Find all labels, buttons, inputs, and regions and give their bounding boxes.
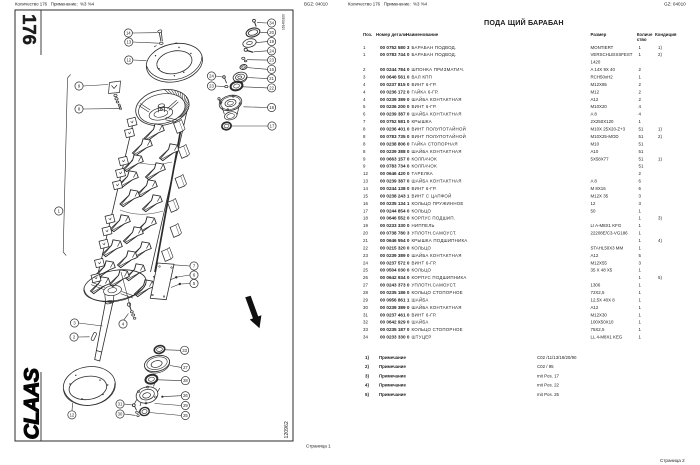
svg-text:00 0783 734 0: 00 0783 734 0 — [380, 164, 410, 169]
svg-text:КОЛПАЧОК: КОЛПАЧОК — [412, 164, 438, 169]
svg-text:00 0752 581 0: 00 0752 581 0 — [380, 119, 410, 124]
svg-text:2): 2) — [658, 134, 662, 139]
svg-text:mit Pos. 17: mit Pos. 17 — [537, 373, 560, 378]
svg-text:Наименование: Наименование — [406, 32, 439, 37]
svg-text:ВИНТ ПОЛУПОТАЙНОЙ: ВИНТ ПОЛУПОТАЙНОЙ — [412, 127, 467, 132]
svg-text:ВИНТ ПОЛУПОТАЙНОЙ: ВИНТ ПОЛУПОТАЙНОЙ — [412, 134, 467, 139]
svg-text:A10: A10 — [591, 149, 599, 154]
svg-text:ВИНТ С ЦАПФОЙ: ВИНТ С ЦАПФОЙ — [412, 193, 452, 198]
svg-text:ВИНТ 6-ГР.: ВИНТ 6-ГР. — [412, 312, 437, 317]
svg-text:БАРАБАН ПОДВОД.: БАРАБАН ПОДВОД. — [412, 45, 457, 50]
svg-text:00 0783 735 0: 00 0783 735 0 — [380, 134, 410, 139]
svg-text:18: 18 — [269, 105, 274, 110]
svg-text:00 0646 420 0: 00 0646 420 0 — [380, 171, 410, 176]
svg-text:51: 51 — [639, 141, 644, 146]
svg-text:00 0233 330 0: 00 0233 330 0 — [380, 335, 410, 340]
svg-text:ТАРЕЛКА: ТАРЕЛКА — [412, 171, 433, 176]
svg-text:26: 26 — [363, 275, 368, 280]
svg-text:НИППЕЛЬ: НИППЕЛЬ — [412, 223, 435, 228]
svg-text:2): 2) — [365, 364, 369, 369]
svg-text:33: 33 — [182, 348, 187, 353]
svg-text:ВАЛ КПП: ВАЛ КПП — [412, 75, 433, 80]
svg-text:M10X25-MOD: M10X25-MOD — [591, 134, 619, 139]
svg-text:19: 19 — [269, 39, 274, 44]
svg-text:14: 14 — [363, 186, 368, 191]
svg-text:КОРПУС ПОДШИП.: КОРПУС ПОДШИП. — [412, 216, 456, 221]
svg-text:00 0235 186 0: 00 0235 186 0 — [380, 290, 410, 295]
svg-text:17: 17 — [363, 208, 368, 213]
svg-text:GZ: 04010: GZ: 04010 — [664, 2, 686, 7]
svg-text:00 0239 388 0: 00 0239 388 0 — [380, 149, 410, 154]
svg-text:00 0239 389 0: 00 0239 389 0 — [380, 253, 410, 258]
svg-text:ПОДА ЩИЙ БАРАБАН: ПОДА ЩИЙ БАРАБАН — [484, 18, 564, 27]
svg-text:ШАЙБА КОНТАКТНАЯ: ШАЙБА КОНТАКТНАЯ — [412, 179, 462, 184]
svg-text:Примечание: Примечание — [379, 392, 406, 397]
svg-text:ВИНТ 6-ГР.: ВИНТ 6-ГР. — [412, 260, 437, 265]
svg-text:26: 26 — [183, 393, 188, 398]
svg-text:A12: A12 — [591, 253, 599, 258]
svg-text:M12X85: M12X85 — [591, 82, 608, 87]
svg-text:31: 31 — [118, 401, 123, 406]
svg-text:00 0237 815 0: 00 0237 815 0 — [380, 82, 410, 87]
svg-text:00 0646 554 0: 00 0646 554 0 — [380, 238, 410, 243]
svg-text:КОЛЬЦО СТОПОРНОЕ: КОЛЬЦО СТОПОРНОЕ — [412, 327, 463, 332]
svg-text:21: 21 — [269, 76, 274, 81]
svg-text:00 0783 744 0: 00 0783 744 0 — [380, 52, 410, 57]
svg-text:3): 3) — [658, 216, 662, 221]
svg-text:2): 2) — [658, 52, 662, 57]
svg-text:22: 22 — [363, 245, 368, 250]
svg-text:5X58X77: 5X58X77 — [591, 156, 610, 161]
svg-text:ШТУЦЕР: ШТУЦЕР — [412, 335, 432, 340]
svg-text:51: 51 — [639, 149, 644, 154]
svg-text:M 8X16: M 8X16 — [591, 186, 607, 191]
svg-text:00 0237 572 0: 00 0237 572 0 — [380, 260, 410, 265]
svg-text:00 0646 552 0: 00 0646 552 0 — [380, 216, 410, 221]
svg-text:ВИНТ 6-ГР.: ВИНТ 6-ГР. — [412, 104, 437, 109]
svg-text:23: 23 — [363, 253, 368, 258]
svg-text:00 0956 861 1: 00 0956 861 1 — [380, 297, 410, 302]
svg-text:A12: A12 — [591, 305, 599, 310]
svg-text:17: 17 — [270, 123, 275, 128]
svg-text:12,5X 40X 8: 12,5X 40X 8 — [591, 297, 616, 302]
svg-text:КОЛЬЦО: КОЛЬЦО — [412, 245, 432, 250]
svg-text:00 0244 138 0: 00 0244 138 0 — [380, 186, 410, 191]
svg-text:00 0239 389 0: 00 0239 389 0 — [380, 97, 410, 102]
svg-text:00 0504 030 0: 00 0504 030 0 — [380, 268, 410, 273]
svg-text:51: 51 — [639, 127, 644, 132]
svg-text:18: 18 — [363, 216, 368, 221]
svg-text:00 0235 187 0: 00 0235 187 0 — [380, 327, 410, 332]
svg-text:34: 34 — [363, 335, 368, 340]
svg-text:00 0239 387 0: 00 0239 387 0 — [380, 179, 410, 184]
svg-text:176: 176 — [19, 14, 40, 45]
svg-text:УПЛОТН.САМОУСТ.: УПЛОТН.САМОУСТ. — [412, 283, 457, 288]
svg-text:00 0244 854 0: 00 0244 854 0 — [380, 208, 410, 213]
svg-text:КОЛЬЦО: КОЛЬЦО — [412, 208, 432, 213]
svg-text:23: 23 — [269, 58, 274, 63]
svg-text:00 0239 387 0: 00 0239 387 0 — [380, 112, 410, 117]
svg-text:ШАЙБА КОНТАКТНАЯ: ШАЙБА КОНТАКТНАЯ — [412, 149, 462, 154]
svg-text:28: 28 — [363, 290, 368, 295]
svg-text:4): 4) — [365, 383, 369, 388]
svg-text:27: 27 — [183, 365, 188, 370]
svg-text:КОЛПАЧОК: КОЛПАЧОК — [412, 156, 438, 161]
svg-text:Примечание: Примечание — [379, 383, 406, 388]
svg-text:27: 27 — [363, 283, 368, 288]
svg-text:STAHL50X3 MM: STAHL50X3 MM — [591, 245, 624, 250]
svg-text:51: 51 — [639, 134, 644, 139]
svg-text:00 0238 243 1: 00 0238 243 1 — [380, 193, 410, 198]
svg-text:00 0646 561 0: 00 0646 561 0 — [380, 75, 410, 80]
svg-text:16: 16 — [269, 67, 274, 72]
svg-text:Кондиция: Кондиция — [655, 32, 677, 37]
svg-text:75X2,5: 75X2,5 — [591, 327, 605, 332]
svg-text:Количество 176 Применение:: Количество 176 Применение: %3 %4 — [348, 2, 428, 7]
svg-text:Примечание: Примечание — [379, 364, 406, 369]
svg-text:5): 5) — [658, 275, 662, 280]
svg-text:БАРАБАН ПОДВОД.: БАРАБАН ПОДВОД. — [412, 52, 457, 57]
svg-text:M12X30: M12X30 — [591, 312, 608, 317]
svg-text:M12X 35: M12X 35 — [591, 193, 609, 198]
svg-text:16146b100: 16146b100 — [282, 14, 286, 30]
svg-text:Страница 1: Страница 1 — [306, 444, 331, 449]
svg-text:00 0243 373 0: 00 0243 373 0 — [380, 283, 410, 288]
svg-text:00 0239 389 0: 00 0239 389 0 — [380, 305, 410, 310]
svg-text:КОРПУС ПОДШИПНИКА: КОРПУС ПОДШИПНИКА — [412, 275, 467, 280]
svg-text:34: 34 — [269, 20, 274, 25]
svg-text:13: 13 — [363, 179, 368, 184]
svg-text:LI A-M8X1 KFG: LI A-M8X1 KFG — [591, 223, 622, 228]
svg-text:A12: A12 — [591, 97, 599, 102]
svg-text:ШАЙБА: ШАЙБА — [412, 297, 429, 302]
svg-text:00 0642 934 0: 00 0642 934 0 — [380, 275, 410, 280]
svg-text:5): 5) — [365, 392, 369, 397]
svg-text:ГАЙКА СТОПОРНАЯ: ГАЙКА СТОПОРНАЯ — [412, 141, 458, 146]
svg-text:Примечание: Примечание — [379, 355, 406, 360]
svg-text:00 0235 134 1: 00 0235 134 1 — [380, 201, 410, 206]
svg-text:1): 1) — [658, 156, 662, 161]
svg-text:16: 16 — [363, 201, 368, 206]
svg-text:УПЛОТН.САМОУСТ.: УПЛОТН.САМОУСТ. — [412, 231, 457, 236]
svg-text:00 0236 172 0: 00 0236 172 0 — [380, 89, 410, 94]
svg-text:ВИНТ 6-ГР.: ВИНТ 6-ГР. — [412, 82, 437, 87]
svg-text:ШАЙБА: ШАЙБА — [412, 320, 429, 325]
svg-text:30: 30 — [118, 411, 123, 416]
svg-text:35 X 48 X5: 35 X 48 X5 — [591, 268, 613, 273]
svg-text:A 14X 9X 40: A 14X 9X 40 — [591, 67, 616, 72]
svg-text:00 0663 157 0: 00 0663 157 0 — [380, 156, 410, 161]
svg-text:13: 13 — [126, 39, 131, 44]
svg-text:M10X 25X20-Z+3: M10X 25X20-Z+3 — [591, 127, 626, 132]
svg-text:12: 12 — [591, 201, 596, 206]
svg-text:12: 12 — [363, 171, 368, 176]
svg-text:24: 24 — [269, 48, 274, 53]
svg-text:ШАЙБА КОНТАКТНАЯ: ШАЙБА КОНТАКТНАЯ — [412, 112, 462, 117]
svg-text:A 8: A 8 — [591, 179, 598, 184]
svg-text:00 0237 461 0: 00 0237 461 0 — [380, 312, 410, 317]
svg-text:120962: 120962 — [284, 421, 290, 438]
svg-text:VERSCHLEISSFEST: VERSCHLEISSFEST — [591, 52, 633, 57]
svg-text:00 0236 200 0: 00 0236 200 0 — [380, 104, 410, 109]
svg-text:M10X20: M10X20 — [591, 104, 608, 109]
svg-text:1306: 1306 — [591, 283, 601, 288]
svg-text:КРЫШКА: КРЫШКА — [412, 119, 432, 124]
svg-text:C02 / 95: C02 / 95 — [537, 364, 554, 369]
svg-text:21: 21 — [363, 238, 368, 243]
svg-text:ШПОНКА ПРИЗМАТИЧ.: ШПОНКА ПРИЗМАТИЧ. — [412, 67, 465, 72]
svg-text:25: 25 — [183, 413, 188, 418]
svg-text:mit Pos. 25: mit Pos. 25 — [537, 392, 560, 397]
svg-text:20: 20 — [269, 30, 274, 35]
svg-text:20: 20 — [363, 231, 368, 236]
svg-text:19: 19 — [363, 223, 368, 228]
svg-text:51: 51 — [639, 156, 644, 161]
svg-text:24: 24 — [363, 260, 368, 265]
svg-text:4): 4) — [658, 238, 662, 243]
svg-text:29: 29 — [183, 403, 188, 408]
svg-text:M12X55: M12X55 — [591, 260, 608, 265]
svg-text:12: 12 — [70, 412, 75, 417]
svg-text:Количество 176 Применение:: Количество 176 Применение: %3 %4 — [15, 2, 95, 7]
svg-text:00 0233 330 0: 00 0233 330 0 — [380, 223, 410, 228]
svg-text:ШАЙБА КОНТАКТНАЯ: ШАЙБА КОНТАКТНАЯ — [412, 253, 462, 258]
svg-text:ВИНТ 6-ГР.: ВИНТ 6-ГР. — [412, 186, 437, 191]
svg-text:24: 24 — [209, 73, 214, 78]
svg-text:C02 /11/13/18/20/90: C02 /11/13/18/20/90 — [537, 355, 577, 360]
svg-text:30: 30 — [363, 305, 368, 310]
svg-text:1): 1) — [658, 127, 662, 132]
svg-text:00 0752 580 3: 00 0752 580 3 — [380, 45, 410, 50]
svg-text:Поз.: Поз. — [363, 32, 372, 37]
svg-text:RCH50xH2: RCH50xH2 — [591, 75, 614, 80]
svg-text:32: 32 — [363, 320, 368, 325]
svg-text:31: 31 — [363, 312, 368, 317]
svg-text:mit Pos. 22: mit Pos. 22 — [537, 383, 560, 388]
svg-text:72X2,5: 72X2,5 — [591, 290, 605, 295]
svg-text:33: 33 — [363, 327, 368, 332]
svg-text:00 0238 806 0: 00 0238 806 0 — [380, 141, 410, 146]
svg-text:100X50X10: 100X50X10 — [591, 320, 615, 325]
svg-text:LL 4-M8X1 KEG: LL 4-M8X1 KEG — [591, 335, 623, 340]
svg-text:Страница 2: Страница 2 — [660, 458, 685, 463]
svg-text:BGZ: 04010: BGZ: 04010 — [304, 2, 328, 7]
svg-text:Размер: Размер — [591, 32, 607, 37]
svg-text:1): 1) — [365, 355, 369, 360]
svg-text:00 0244 784 0: 00 0244 784 0 — [380, 67, 410, 72]
svg-text:CLAAS: CLAAS — [20, 367, 44, 439]
svg-text:A 8: A 8 — [591, 112, 598, 117]
svg-text:КОЛЬЦО ПРУЖИННОЕ: КОЛЬЦО ПРУЖИННОЕ — [412, 201, 464, 206]
svg-text:Номер детали: Номер детали — [376, 32, 407, 37]
svg-text:25: 25 — [363, 268, 368, 273]
svg-text:15: 15 — [363, 193, 368, 198]
svg-text:00 0236 401 0: 00 0236 401 0 — [380, 127, 410, 132]
svg-text:M10: M10 — [591, 141, 600, 146]
svg-text:22208E/C3-VG186: 22208E/C3-VG186 — [591, 231, 629, 236]
svg-text:КРЫШКА ПОДШИПНИКА: КРЫШКА ПОДШИПНИКА — [412, 238, 468, 243]
svg-text:ГАЙКА 6-ГР.: ГАЙКА 6-ГР. — [412, 89, 439, 94]
svg-text:00 0642 929 0: 00 0642 929 0 — [380, 320, 410, 325]
svg-text:ШАЙБА КОНТАКТНАЯ: ШАЙБА КОНТАКТНАЯ — [412, 305, 462, 310]
svg-text:ство: ство — [637, 37, 647, 42]
svg-text:50: 50 — [591, 208, 596, 213]
svg-text:1): 1) — [658, 45, 662, 50]
svg-text:КОЛЬЦО: КОЛЬЦО — [412, 268, 432, 273]
svg-text:MONTIERT: MONTIERT — [591, 45, 614, 50]
svg-text:23: 23 — [209, 83, 214, 88]
svg-text:29: 29 — [363, 297, 368, 302]
svg-text:1420: 1420 — [591, 60, 601, 65]
svg-text:Примечание: Примечание — [379, 373, 406, 378]
svg-text:14: 14 — [126, 30, 131, 35]
svg-text:12: 12 — [126, 57, 131, 62]
svg-text:ШАЙБА КОНТАКТНАЯ: ШАЙБА КОНТАКТНАЯ — [412, 97, 462, 102]
svg-text:3): 3) — [365, 373, 369, 378]
svg-text:22: 22 — [269, 85, 274, 90]
svg-text:КОЛЬЦО СТОПОРНОЕ: КОЛЬЦО СТОПОРНОЕ — [412, 290, 463, 295]
svg-text:28: 28 — [183, 378, 188, 383]
svg-text:00 0215 320 0: 00 0215 320 0 — [380, 245, 410, 250]
svg-text:51: 51 — [639, 164, 644, 169]
svg-text:M12: M12 — [591, 89, 600, 94]
svg-text:00 0738 780 3: 00 0738 780 3 — [380, 231, 410, 236]
svg-text:2X250X120: 2X250X120 — [591, 119, 615, 124]
